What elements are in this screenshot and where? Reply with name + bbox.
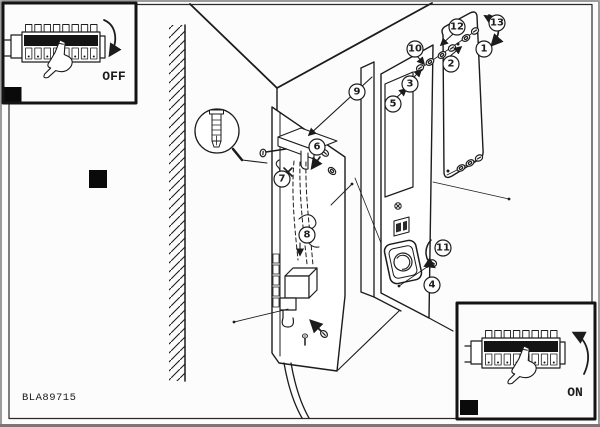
svg-text:4: 4: [429, 280, 436, 291]
svg-text:10: 10: [408, 44, 422, 55]
svg-text:12: 12: [450, 22, 464, 33]
svg-text:8: 8: [304, 230, 311, 241]
svg-text:1: 1: [481, 44, 488, 55]
callout-4: 4: [424, 277, 440, 293]
callout-12: 12: [449, 19, 465, 35]
inset-marker-off: [5, 87, 22, 102]
on-label: ON: [567, 385, 583, 400]
inset-power-off: OFF: [3, 3, 136, 103]
off-label: OFF: [102, 69, 126, 84]
svg-text:11: 11: [436, 243, 450, 254]
wall-anchor-detail: [195, 109, 267, 163]
wall-hatching: [169, 25, 185, 381]
svg-text:2: 2: [448, 59, 455, 70]
callout-11: 11: [435, 240, 451, 256]
svg-text:13: 13: [490, 18, 504, 29]
callout-1: 1: [476, 41, 492, 57]
power-switch: [394, 217, 409, 236]
inset-power-on: ON: [457, 303, 595, 419]
callout-6: 6: [309, 139, 325, 155]
callout-9: 9: [349, 84, 365, 100]
callout-10: 10: [407, 41, 423, 57]
callout-3: 3: [402, 76, 418, 92]
exploded-diagram: 1 2 3 4 5 6 7 8 9 10 11 12 13 OFF: [0, 0, 600, 427]
svg-text:5: 5: [390, 99, 397, 110]
panel-screw: [395, 203, 401, 209]
svg-text:9: 9: [354, 87, 361, 98]
svg-text:7: 7: [279, 174, 286, 185]
wall-marker: [89, 170, 107, 188]
svg-text:6: 6: [314, 142, 321, 153]
callout-13: 13: [489, 15, 505, 31]
callout-8: 8: [299, 227, 315, 243]
inset-marker-on: [460, 400, 478, 415]
power-cable: [284, 363, 309, 418]
callout-7: 7: [274, 171, 290, 187]
leader-line: [433, 182, 510, 200]
figure-code: BLA89715: [22, 392, 76, 404]
callout-2: 2: [443, 56, 459, 72]
callout-5: 5: [385, 96, 401, 112]
illustration-canvas: 1 2 3 4 5 6 7 8 9 10 11 12 13 OFF: [0, 0, 600, 427]
svg-text:3: 3: [407, 79, 414, 90]
